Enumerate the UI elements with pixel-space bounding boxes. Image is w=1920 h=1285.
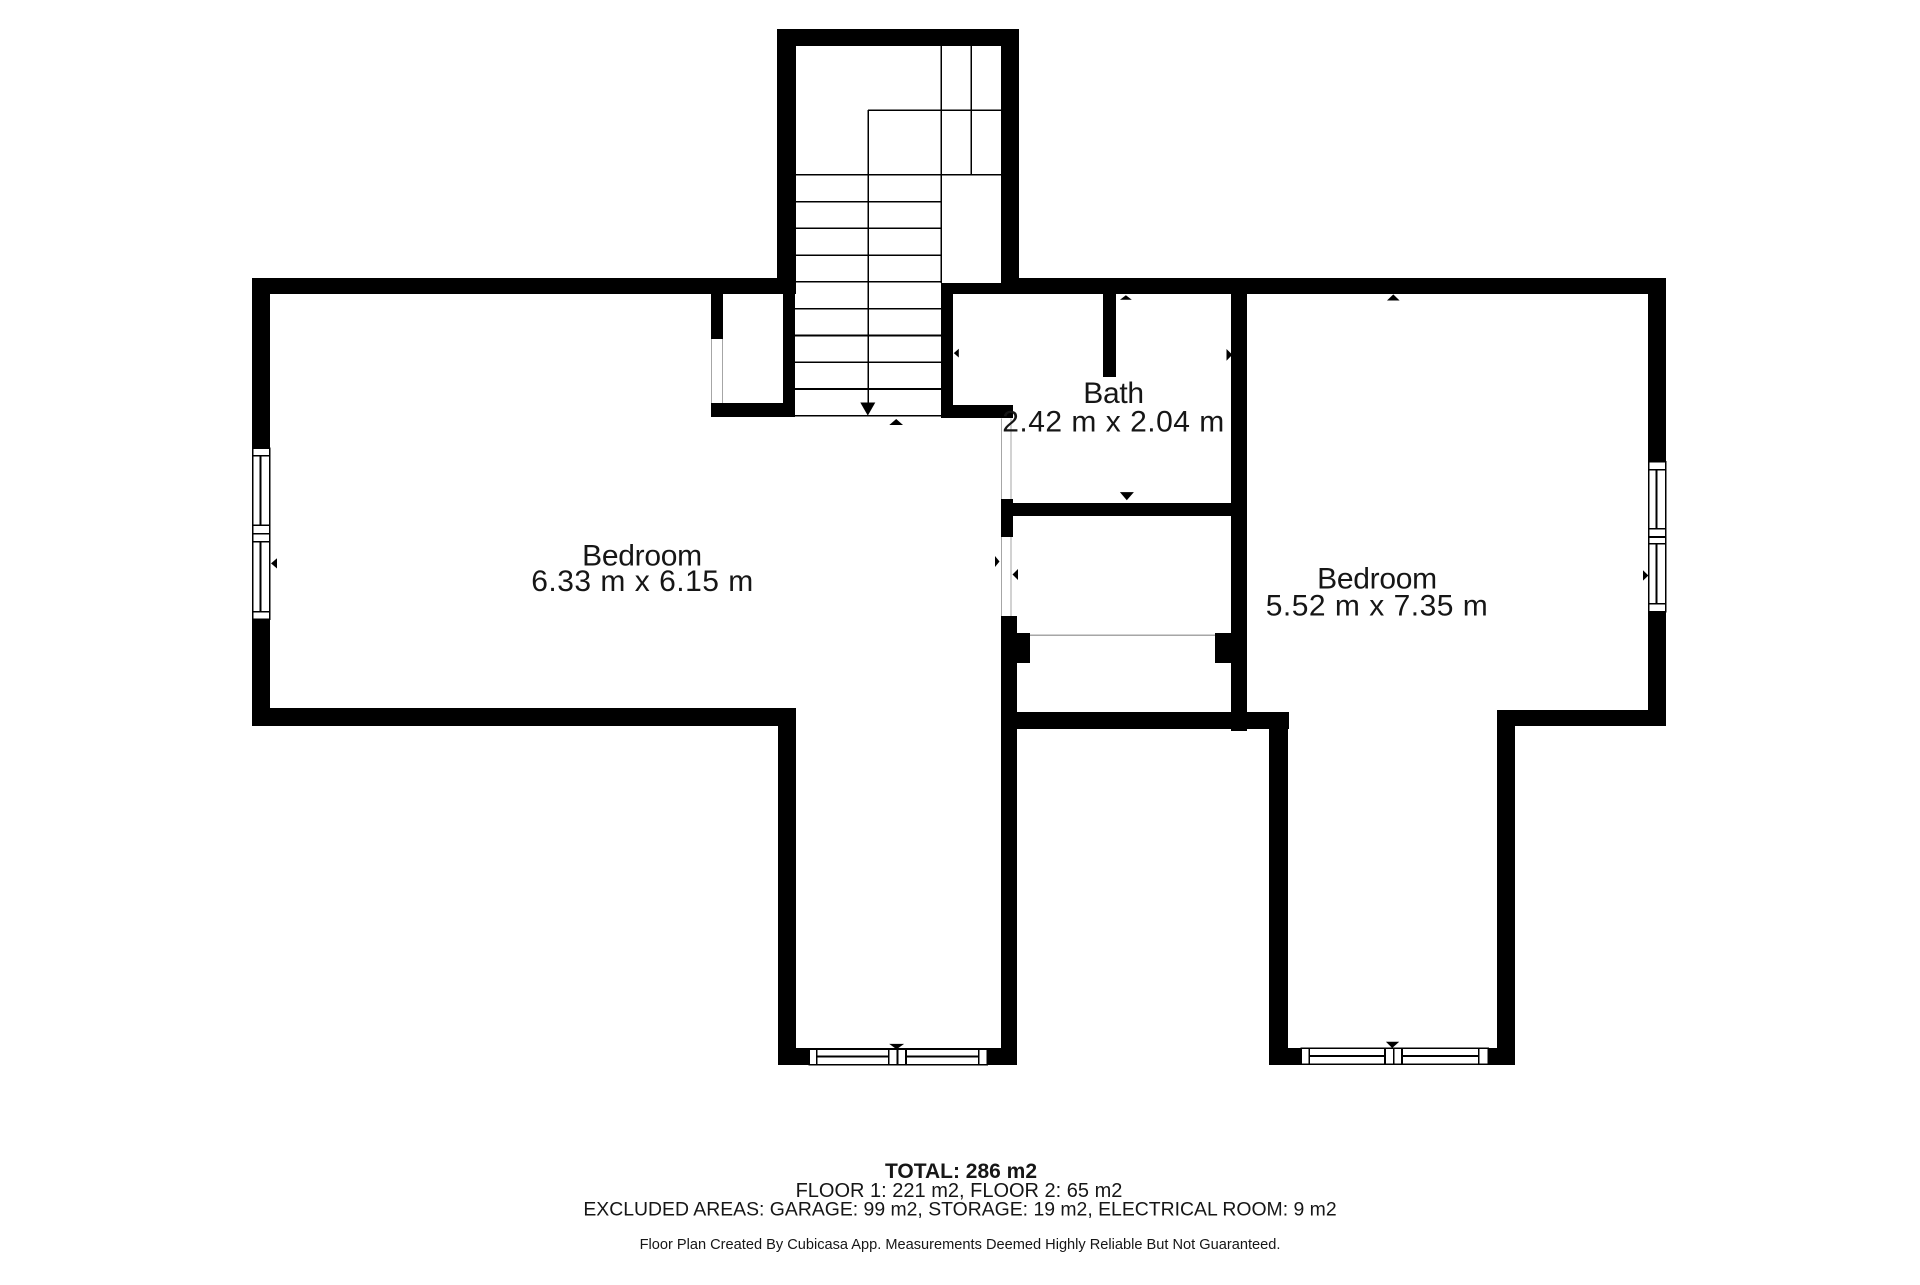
- svg-text:5.52 m x 7.35 m: 5.52 m x 7.35 m: [1266, 589, 1489, 622]
- svg-text:EXCLUDED AREAS: GARAGE: 99 m2,: EXCLUDED AREAS: GARAGE: 99 m2, STORAGE: …: [583, 1199, 1336, 1221]
- svg-text:Floor Plan Created By Cubicasa: Floor Plan Created By Cubicasa App. Meas…: [640, 1237, 1281, 1253]
- svg-text:2.42 m x 2.04 m: 2.42 m x 2.04 m: [1002, 406, 1225, 439]
- svg-text:6.33 m x 6.15 m: 6.33 m x 6.15 m: [531, 565, 754, 598]
